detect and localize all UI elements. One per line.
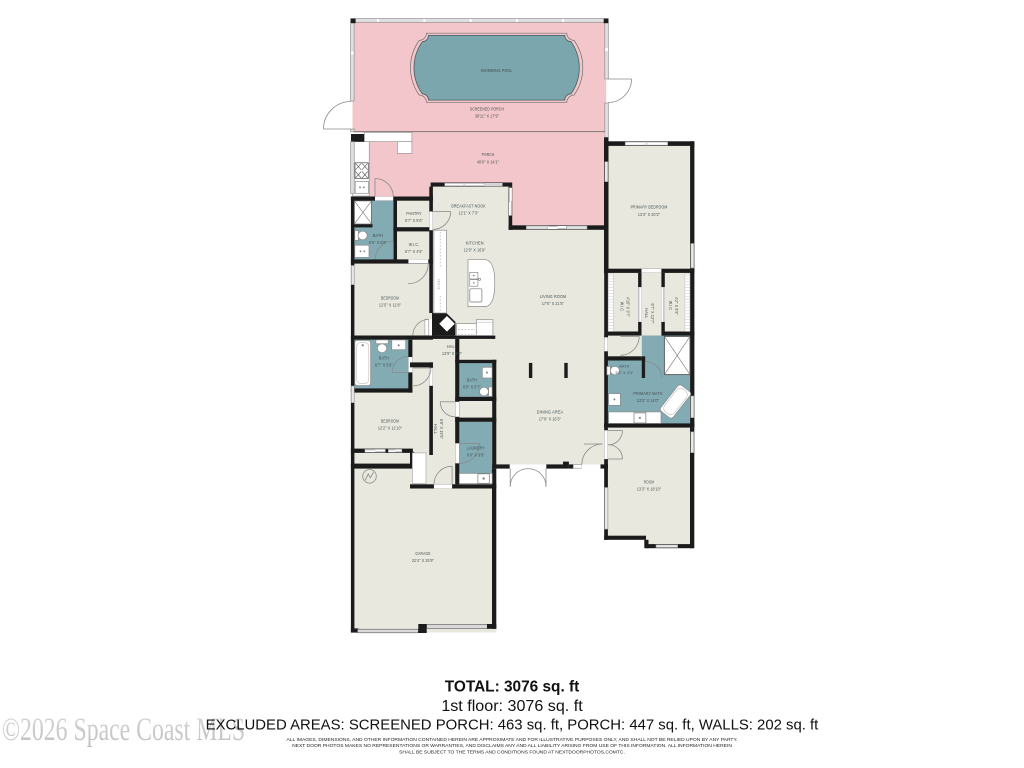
svg-text:5'7" X 4'5": 5'7" X 4'5" — [405, 249, 423, 254]
svg-text:4'10" X 9'7": 4'10" X 9'7" — [626, 297, 631, 317]
svg-text:17'6" X 16'3": 17'6" X 16'3" — [539, 417, 561, 422]
svg-text:5'3" X 3'3": 5'3" X 3'3" — [616, 371, 634, 375]
svg-text:40'0" X 14'1": 40'0" X 14'1" — [477, 159, 499, 164]
svg-text:HALL: HALL — [447, 344, 457, 349]
svg-text:39'11" X 17'9": 39'11" X 17'9" — [475, 114, 499, 119]
svg-text:PANTRY: PANTRY — [406, 211, 421, 216]
svg-text:GARAGE: GARAGE — [415, 551, 430, 556]
svg-text:BEDROOM: BEDROOM — [381, 295, 399, 300]
svg-text:ALL IMAGES, DIMENSIONS, AND OT: ALL IMAGES, DIMENSIONS, AND OTHER INFORM… — [287, 737, 738, 743]
svg-text:SWIMMING POOL: SWIMMING POOL — [481, 68, 513, 73]
svg-text:PRIMARY BEDROOM: PRIMARY BEDROOM — [631, 205, 668, 210]
svg-text:TOTAL: 3076 sq. ft: TOTAL: 3076 sq. ft — [445, 679, 580, 696]
svg-text:NEXT DOOR PHOTOS MAKES NO REPR: NEXT DOOR PHOTOS MAKES NO REPRESENTATION… — [292, 743, 732, 749]
svg-text:5'7" X 5'0": 5'7" X 5'0" — [405, 218, 423, 223]
svg-text:W.I.C.: W.I.C. — [409, 242, 420, 247]
svg-text:LIVING ROOM: LIVING ROOM — [540, 294, 567, 299]
svg-text:KITCHEN: KITCHEN — [466, 241, 484, 246]
svg-text:6'7" X 13'7": 6'7" X 13'7" — [650, 303, 655, 323]
svg-text:BATH: BATH — [619, 365, 629, 369]
svg-text:BATH: BATH — [379, 356, 389, 361]
svg-text:6'0" X 9'8": 6'0" X 9'8" — [467, 453, 485, 458]
svg-text:BEDROOM: BEDROOM — [381, 418, 399, 423]
svg-text:1st floor: 3076 sq. ft: 1st floor: 3076 sq. ft — [441, 697, 583, 715]
svg-text:6'8" X 19'5": 6'8" X 19'5" — [439, 419, 444, 439]
svg-text:SHALL BE SUBJECT TO THE TERMS: SHALL BE SUBJECT TO THE TERMS AND CONDIT… — [399, 749, 625, 755]
svg-text:BATH: BATH — [373, 233, 383, 238]
svg-text:8'7" X 5'8": 8'7" X 5'8" — [375, 363, 393, 368]
svg-text:12'2" X 11'10": 12'2" X 11'10" — [378, 426, 402, 431]
svg-text:W.I.C.: W.I.C. — [620, 302, 625, 313]
svg-text:6'0" X 5'7": 6'0" X 5'7" — [463, 385, 481, 390]
svg-text:HALL: HALL — [433, 424, 438, 435]
svg-text:ROOM: ROOM — [644, 479, 654, 484]
svg-text:PORCH: PORCH — [482, 152, 495, 157]
svg-text:13'9" X 4'0": 13'9" X 4'0" — [442, 351, 462, 356]
svg-text:SCREENED PORCH: SCREENED PORCH — [470, 106, 504, 111]
svg-text:6'5" X 5'8": 6'5" X 5'8" — [369, 240, 387, 245]
svg-text:HALL: HALL — [644, 308, 649, 319]
svg-text:4'2" X 9'9": 4'2" X 9'9" — [674, 297, 679, 315]
svg-text:12'1" X 7'3": 12'1" X 7'3" — [458, 211, 478, 216]
svg-text:BREAKFAST NOOK: BREAKFAST NOOK — [451, 203, 485, 208]
svg-text:12'5" X 11'8": 12'5" X 11'8" — [379, 303, 401, 308]
svg-text:EXCLUDED AREAS: SCREENED PORCH: EXCLUDED AREAS: SCREENED PORCH: 463 sq. … — [206, 718, 820, 734]
svg-text:30X30: 30X30 — [437, 279, 441, 290]
svg-text:13'3" X 18'10": 13'3" X 18'10" — [637, 487, 661, 492]
svg-text:W.I.C.: W.I.C. — [668, 301, 673, 312]
svg-text:12'0" X 16'9": 12'0" X 16'9" — [464, 248, 486, 253]
svg-text:LAUNDRY: LAUNDRY — [467, 445, 485, 450]
svg-text:22'4" X 25'9": 22'4" X 25'9" — [412, 558, 434, 563]
svg-text:DINING AREA: DINING AREA — [537, 409, 564, 414]
svg-text:13'3" X 14'0": 13'3" X 14'0" — [637, 398, 659, 403]
svg-text:17'6" X 21'5": 17'6" X 21'5" — [542, 301, 564, 306]
svg-text:13'3" X 20'3": 13'3" X 20'3" — [638, 212, 660, 217]
svg-text:BATH: BATH — [467, 377, 477, 382]
svg-text:PRIMARY BATH: PRIMARY BATH — [633, 391, 662, 396]
